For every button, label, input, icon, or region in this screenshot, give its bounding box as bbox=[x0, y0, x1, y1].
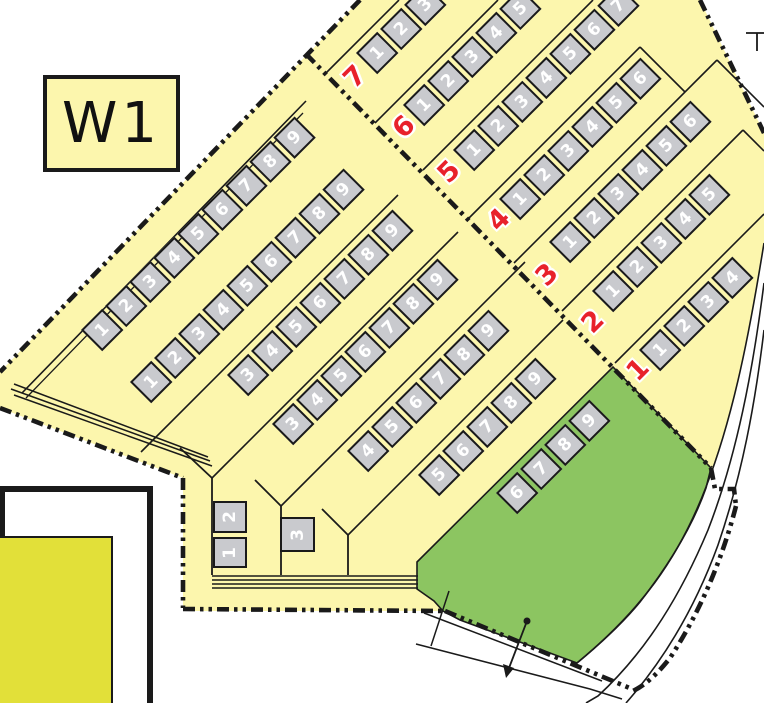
bottom-road-line-2 bbox=[416, 644, 622, 699]
corner-plot-label: 2 bbox=[220, 511, 240, 523]
corner-plot-label: 1 bbox=[220, 547, 240, 559]
adjacent-area-rect bbox=[0, 536, 113, 703]
section-label-text: W1 bbox=[62, 91, 161, 156]
section-label-box: W1 bbox=[43, 75, 180, 172]
corner-plot-3[interactable]: 3 bbox=[280, 517, 315, 552]
corner-plot-2[interactable]: 2 bbox=[213, 501, 247, 533]
corner-plot-label: 3 bbox=[288, 529, 308, 541]
cemetery-section-map: 1234567891234567893456789345678945678956… bbox=[0, 0, 764, 703]
corner-plot-1[interactable]: 1 bbox=[213, 537, 247, 568]
